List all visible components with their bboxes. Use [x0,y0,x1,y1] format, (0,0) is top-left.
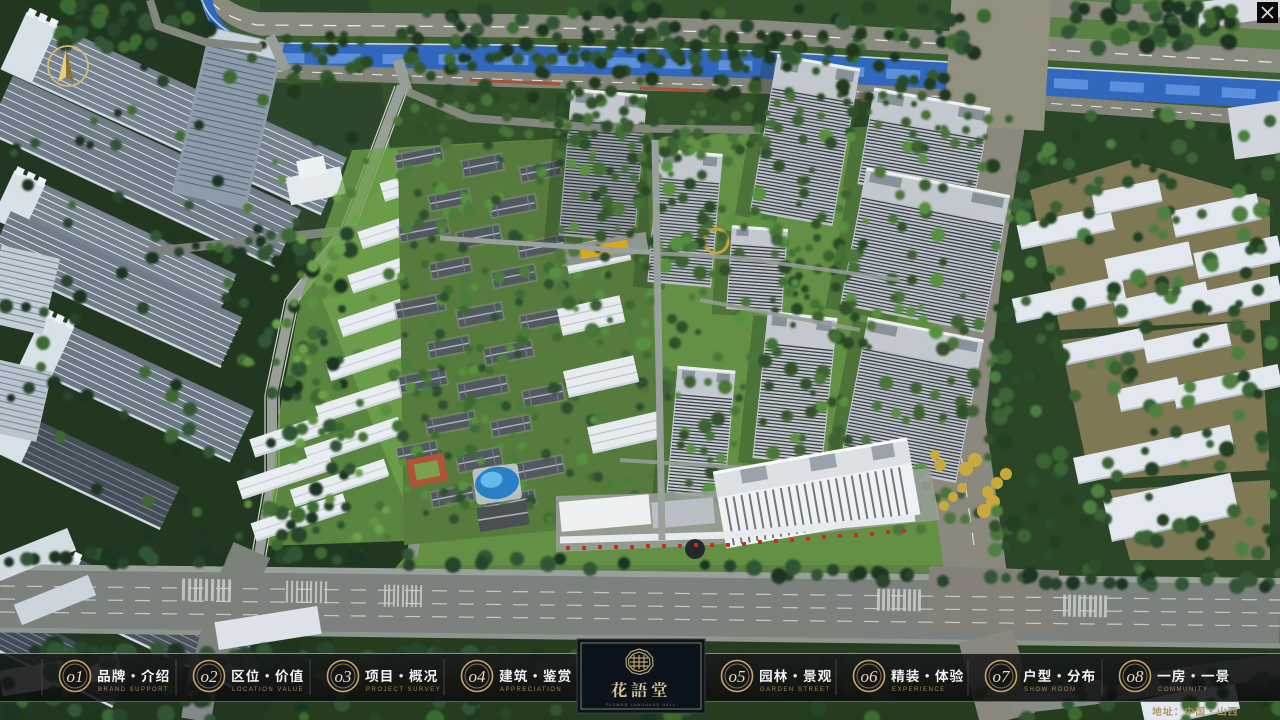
svg-text:o1: o1 [67,667,84,686]
svg-text:FLOWER LANGUAGE HALL: FLOWER LANGUAGE HALL [606,703,676,707]
svg-text:LOCATION VALUE: LOCATION VALUE [232,687,304,693]
svg-text:GARDEN STREET: GARDEN STREET [760,687,831,693]
svg-text:o7: o7 [993,667,1012,686]
svg-text:COMMUNITY: COMMUNITY [1158,687,1209,693]
svg-text:o8: o8 [1127,667,1145,686]
svg-text:o3: o3 [335,667,352,686]
svg-text:EXPERIENCE: EXPERIENCE [892,687,946,693]
svg-text:APPRECIATION: APPRECIATION [500,687,562,693]
svg-text:SHOW ROOM: SHOW ROOM [1024,687,1077,693]
svg-text:PROJECT SURVEY: PROJECT SURVEY [366,687,441,693]
svg-text:o4: o4 [469,667,487,686]
svg-text:o6: o6 [861,667,879,686]
svg-text:BRAND SUPPORT: BRAND SUPPORT [98,687,169,693]
svg-text:o5: o5 [729,667,746,686]
svg-text:o2: o2 [201,667,219,686]
